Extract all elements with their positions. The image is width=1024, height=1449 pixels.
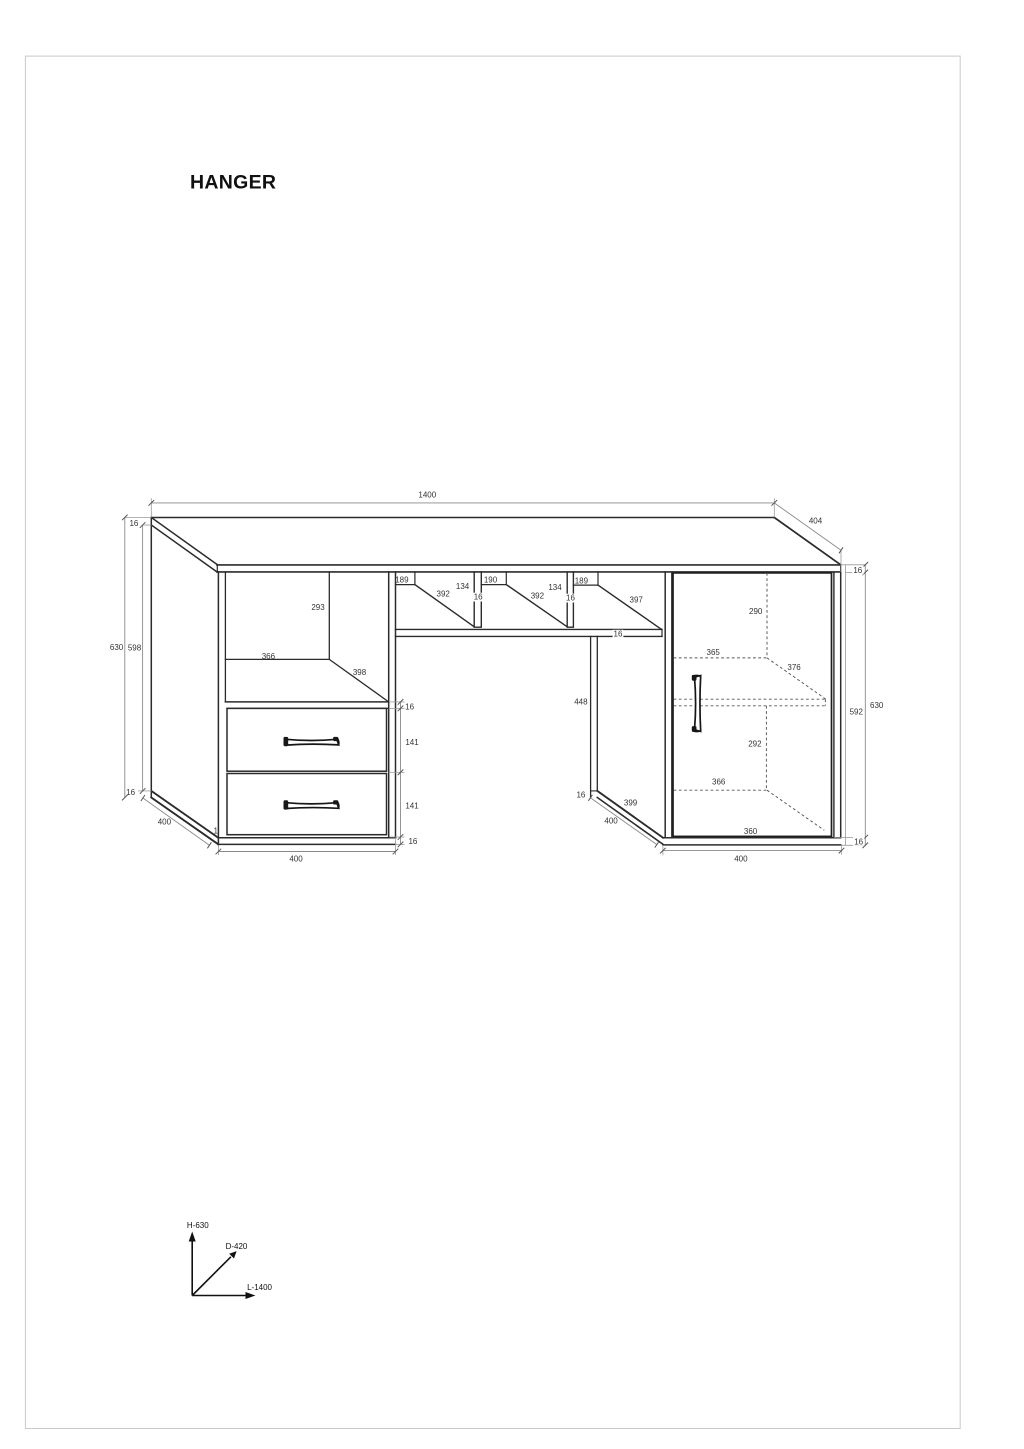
svg-text:16: 16 [405,702,414,711]
svg-text:189: 189 [395,575,409,584]
svg-text:H-630: H-630 [187,1221,209,1230]
svg-text:16: 16 [614,630,623,639]
svg-text:292: 292 [748,740,762,749]
svg-text:16: 16 [853,566,862,575]
svg-text:189: 189 [575,577,589,586]
svg-text:134: 134 [456,582,470,591]
svg-text:141: 141 [405,738,419,747]
svg-text:400: 400 [604,817,618,826]
svg-text:448: 448 [574,698,588,707]
svg-text:376: 376 [787,663,801,672]
svg-text:630: 630 [870,701,884,710]
svg-text:16: 16 [576,790,585,799]
svg-text:16: 16 [566,594,575,603]
svg-text:293: 293 [311,603,325,612]
svg-text:1400: 1400 [418,490,436,499]
svg-text:400: 400 [158,818,172,827]
svg-text:397: 397 [630,595,644,604]
svg-text:630: 630 [110,643,124,652]
svg-text:400: 400 [734,855,748,864]
svg-text:392: 392 [531,592,545,601]
svg-text:365: 365 [707,648,721,657]
svg-text:399: 399 [624,799,638,808]
svg-text:1: 1 [213,826,218,835]
svg-text:598: 598 [128,644,142,653]
svg-text:D-420: D-420 [226,1242,248,1251]
svg-text:L-1400: L-1400 [247,1283,272,1292]
svg-text:404: 404 [809,517,823,526]
svg-text:134: 134 [548,583,562,592]
svg-text:398: 398 [353,668,367,677]
svg-text:190: 190 [484,575,498,584]
svg-text:HANGER: HANGER [190,172,276,194]
svg-text:366: 366 [262,652,276,661]
svg-text:16: 16 [408,837,417,846]
svg-text:366: 366 [712,778,726,787]
svg-text:16: 16 [854,837,863,846]
svg-text:360: 360 [744,827,758,836]
svg-text:141: 141 [405,802,419,811]
svg-text:400: 400 [289,854,303,863]
svg-text:290: 290 [749,607,763,616]
svg-text:16: 16 [474,593,483,602]
svg-text:392: 392 [437,590,451,599]
svg-text:592: 592 [850,708,864,717]
svg-text:16: 16 [126,788,135,797]
svg-text:16: 16 [129,519,138,528]
